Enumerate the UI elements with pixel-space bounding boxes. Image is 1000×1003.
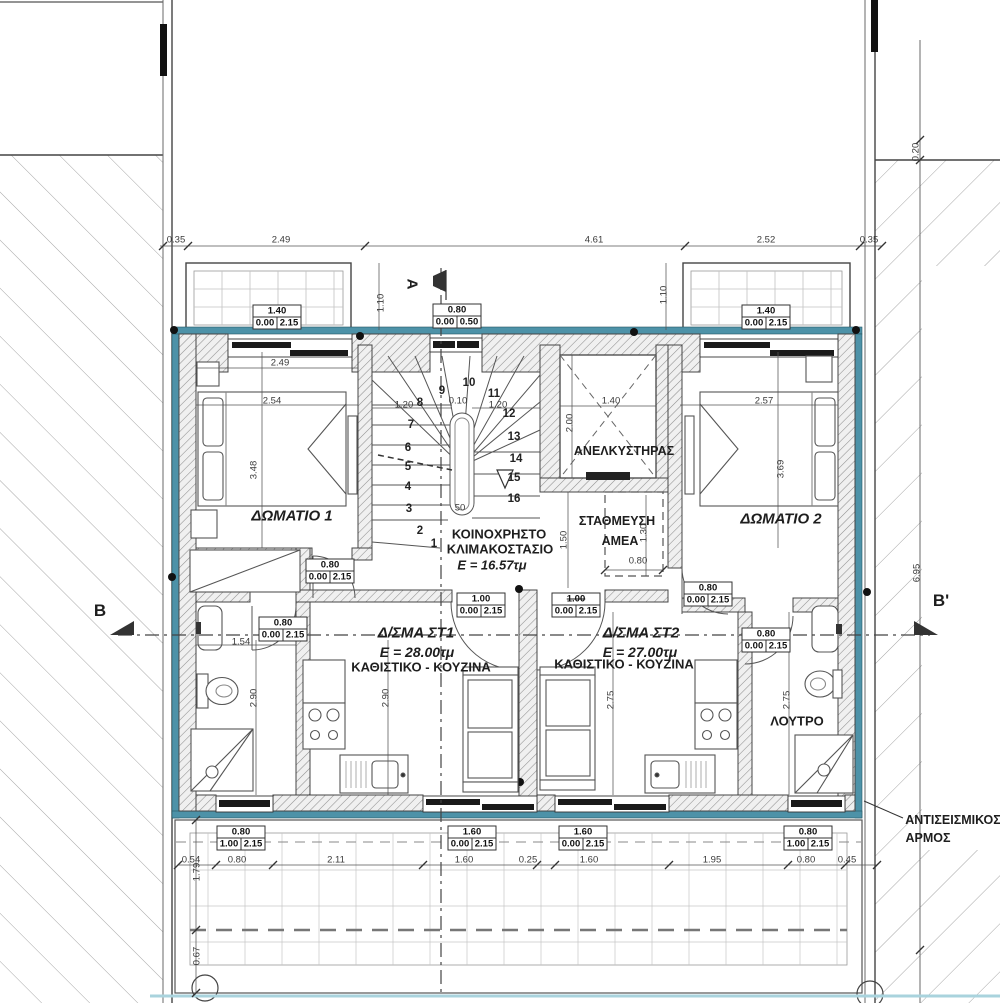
floor-plan-drawing (0, 0, 1000, 1003)
sofa-st1 (463, 667, 518, 792)
sofa-st2 (540, 667, 595, 790)
balcony-room2 (683, 263, 850, 329)
elevator-shaft (560, 355, 656, 480)
terrace (150, 820, 1000, 1003)
kitchen-st1 (303, 660, 408, 793)
disabled-parking-space (601, 492, 667, 576)
bed-room1 (190, 362, 357, 592)
neighbor-plot-left-hatch (0, 2, 163, 1003)
neighbor-plot-right-hatch (875, 160, 1000, 1003)
balcony-room1 (186, 263, 351, 329)
bathroom-st1-fixtures (191, 606, 253, 791)
bed-room2 (685, 356, 838, 506)
floor-plan-page: ΔΩΜΑΤΙΟ 1ΔΩΜΑΤΙΟ 2ΚΟΙΝΟΧΡΗΣΤΟΚΛΙΜΑΚΟΣΤΑΣ… (0, 0, 1000, 1003)
staircase (372, 356, 540, 548)
kitchen-st2 (645, 660, 737, 793)
